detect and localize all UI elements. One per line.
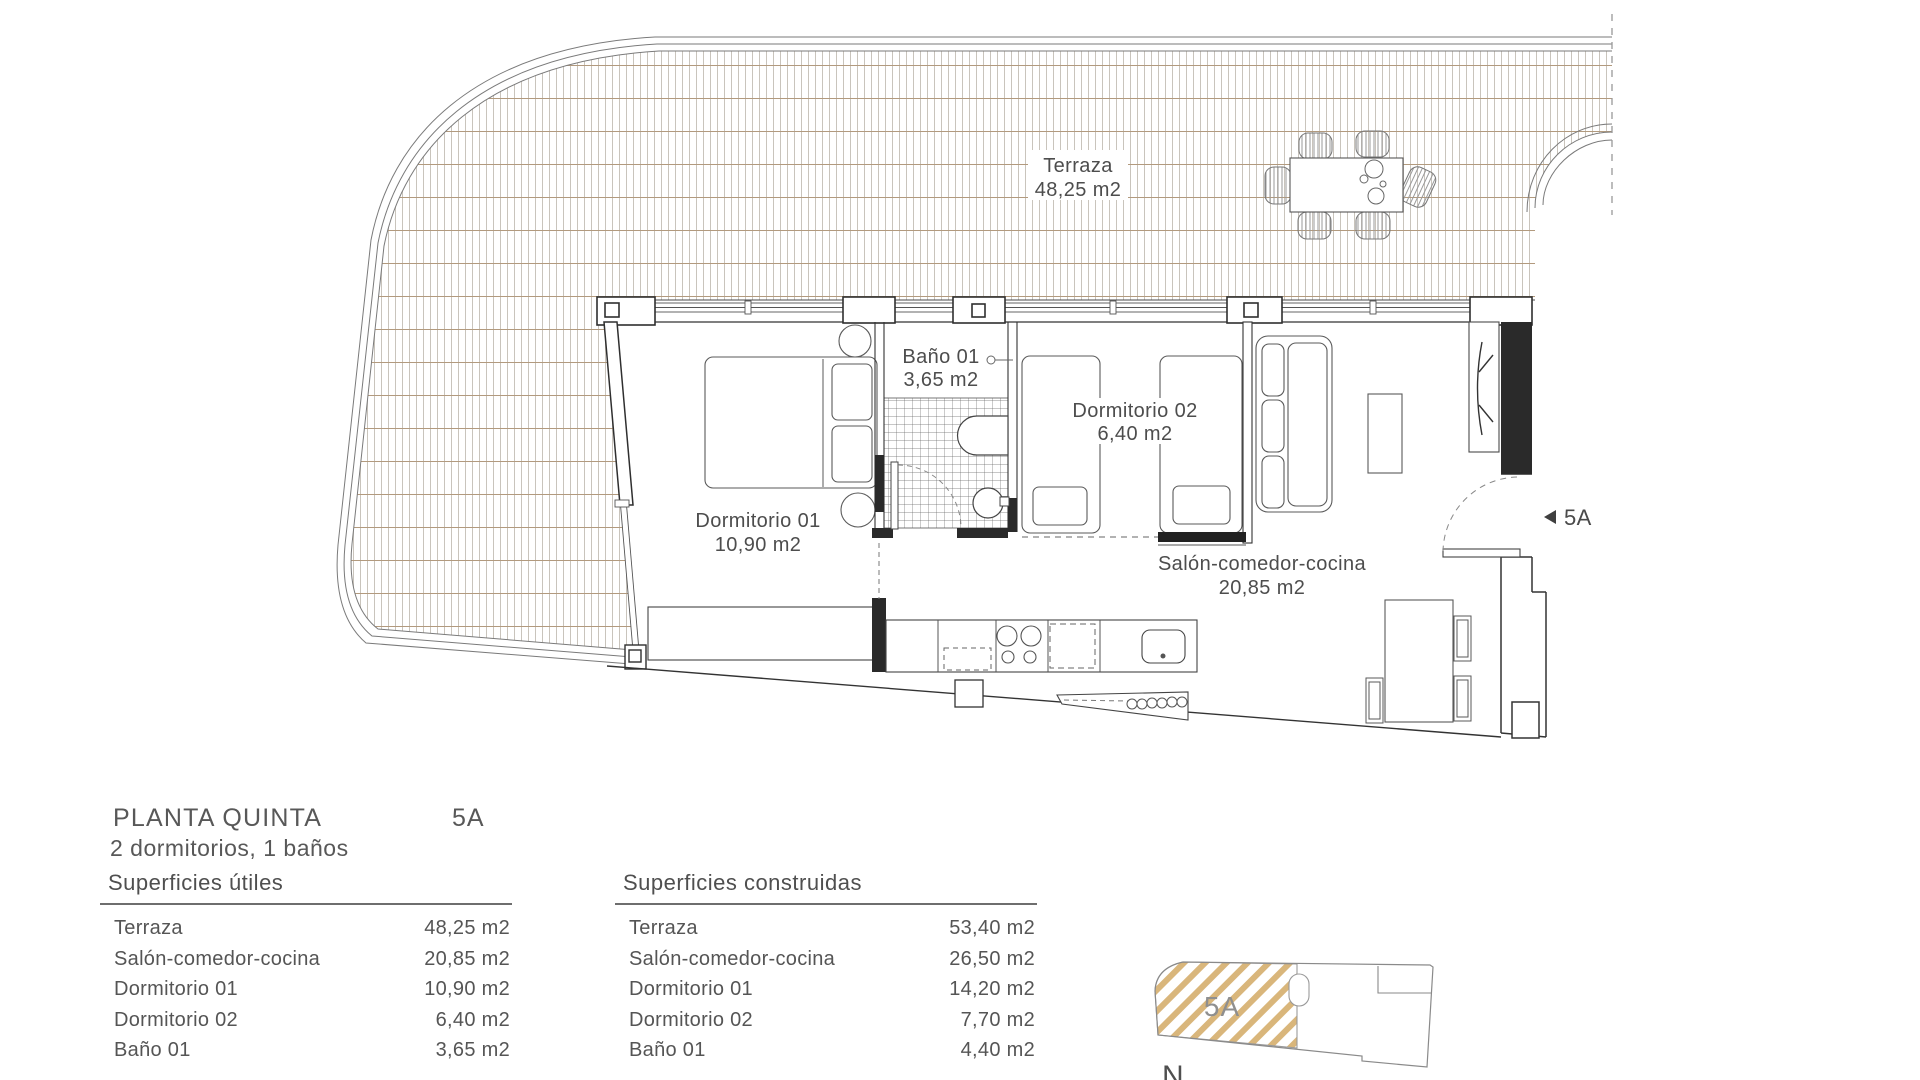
terrace: Terraza 48,25 m2 [337,14,1612,664]
nightstand [839,325,871,357]
terrace-chair [1298,212,1331,239]
wall-fill [872,528,893,538]
row-label: Baño 01 [629,1035,706,1066]
pillow [1033,487,1087,525]
row-label: Dormitorio 02 [114,1005,238,1036]
row-label: Terraza [114,913,183,944]
bathroom-sink [973,488,1003,518]
table-header: Superficies útiles [100,870,512,903]
kitchen-tall-unit [872,598,886,672]
minimap-stair-bump [1289,974,1309,1006]
floorplan-page: Terraza 48,25 m2 [0,0,1920,1080]
terrace-chair [1265,167,1291,204]
bathtub [958,416,1008,455]
right-wall-column [1512,702,1539,738]
pillow [1173,486,1230,524]
bathroom-door-leaf [891,462,898,529]
row-value: 20,85 m2 [424,944,510,975]
coffee-table [1368,394,1402,473]
table-row: Salón-comedor-cocina 20,85 m2 [100,944,512,975]
terrace-chair [1356,212,1390,239]
bathroom-area: 3,65 m2 [903,369,978,391]
row-label: Dormitorio 01 [114,974,238,1005]
pillow [832,364,872,420]
entry-arrow-icon [1544,510,1556,524]
right-wall-upper [1501,322,1532,474]
row-value: 3,65 m2 [436,1035,510,1066]
table-row: Dormitorio 02 6,40 m2 [100,1005,512,1036]
table-superficies-construidas: Superficies construidas Terraza 53,40 m2… [615,870,1037,1080]
structural-column [955,680,983,707]
terrace-chair [1356,131,1389,157]
table-row: Baño 01 3,65 m2 [100,1035,512,1066]
terrace-deck-hatch [351,51,1612,650]
location-minimap: 5A N [1155,962,1433,1080]
nightstand [841,493,875,527]
bathroom: Baño 01 3,65 m2 [872,322,1017,538]
living-area: 20,85 m2 [1219,577,1306,599]
terrace-label: Terraza [1043,155,1113,177]
table-row: Salón-comedor-cocina 26,50 m2 [615,944,1037,975]
table-row: Dormitorio 01 14,20 m2 [615,974,1037,1005]
light-symbol [987,356,995,364]
row-label: Dormitorio 01 [629,974,753,1005]
window-strip [655,301,1470,314]
wall-fill [875,455,884,512]
table-header: Superficies construidas [615,870,1037,903]
pillow [832,426,872,482]
table-body: Terraza 48,25 m2 Salón-comedor-cocina 20… [100,903,512,1080]
table-body: Terraza 53,40 m2 Salón-comedor-cocina 26… [615,903,1037,1080]
row-value: 7,70 m2 [961,1005,1035,1036]
entry-door [1443,477,1520,557]
bedroom-2: Dormitorio 02 6,40 m2 [1022,322,1252,545]
row-value: 53,40 m2 [949,913,1035,944]
left-corner-column [629,650,641,662]
page-title: PLANTA QUINTA [113,804,322,833]
row-value: 48,25 m2 [424,913,510,944]
row-value: 14,20 m2 [949,974,1035,1005]
row-label: Dormitorio 02 [629,1005,753,1036]
tv-console [1469,322,1499,452]
bedroom-1: Dormitorio 01 10,90 m2 [695,325,877,556]
bedroom1-area: 10,90 m2 [715,534,802,556]
dining-table [1385,600,1453,722]
table-row: Dormitorio 02 7,70 m2 [615,1005,1037,1036]
sink-drain [1161,654,1166,659]
sofa [1256,336,1332,512]
table-row: Dormitorio 01 10,90 m2 [100,974,512,1005]
table-row: Terraza 53,40 m2 [615,913,1037,944]
sink-tap [1000,497,1009,506]
bedroom2-area: 6,40 m2 [1097,423,1172,445]
minimap-unit-label: 5A [1204,991,1240,1022]
entry-unit-label: 5A [1564,505,1592,530]
kitchen-counter-left [648,607,878,660]
table-superficies-utiles: Superficies útiles Terraza 48,25 m2 Saló… [100,870,512,1080]
bedroom1-label: Dormitorio 01 [695,510,820,532]
bedroom2-sliding-door [1158,532,1246,542]
table-row: Baño 01 4,40 m2 [615,1035,1037,1066]
row-label: Baño 01 [114,1035,191,1066]
entry-marker: 5A [1544,505,1592,530]
row-label: Terraza [629,913,698,944]
row-value: 4,40 m2 [961,1035,1035,1066]
row-label: Salón-comedor-cocina [629,944,835,975]
page-subtitle: 2 dormitorios, 1 baños [110,835,349,862]
row-value: 10,90 m2 [424,974,510,1005]
terrace-chair [1299,133,1332,159]
row-value: 26,50 m2 [949,944,1035,975]
minimap-notch [1378,966,1431,993]
row-label: Salón-comedor-cocina [114,944,320,975]
table-row: Terraza 48,25 m2 [100,913,512,944]
wall-fill [957,528,1008,538]
row-value: 6,40 m2 [436,1005,510,1036]
bathroom-label: Baño 01 [902,346,979,368]
terrace-area: 48,25 m2 [1035,179,1122,201]
unit-code: 5A [452,804,485,833]
minimap-north-label: N [1162,1060,1184,1080]
bedroom2-label: Dormitorio 02 [1072,400,1197,422]
bedroom2-right-wall [1243,322,1252,543]
living-label: Salón-comedor-cocina [1158,553,1367,575]
